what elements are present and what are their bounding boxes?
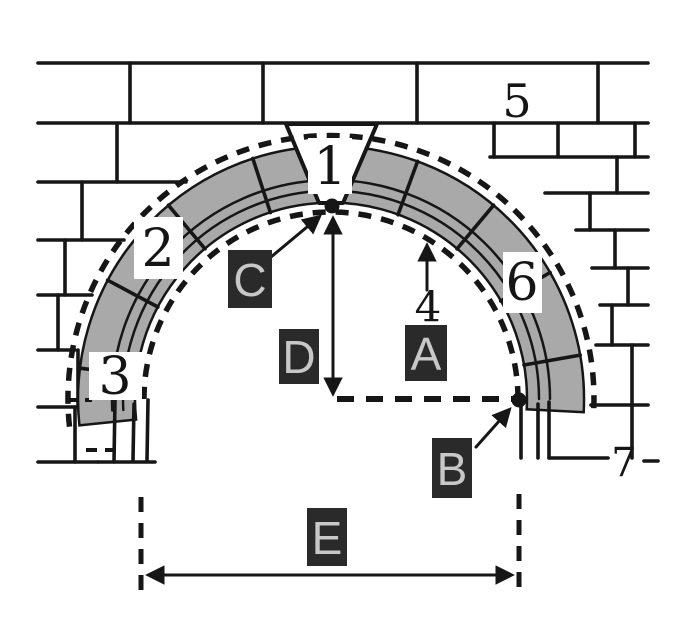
answer-box-b: B: [432, 438, 472, 498]
label-3-text: 3: [98, 347, 131, 407]
answer-c-text: C: [233, 254, 266, 306]
springing-dot: [512, 393, 527, 408]
number-label-1-keystone: 1: [308, 137, 352, 197]
number-label-7-abutment: 7: [611, 440, 636, 486]
arch-diagram: 1 2 3 4 5 6 7 C D A B E: [0, 0, 678, 630]
answer-b-text: B: [437, 443, 468, 495]
answer-box-c: C: [228, 250, 272, 308]
number-label-4-intrados: 4: [415, 283, 442, 332]
label-1-text: 1: [313, 137, 346, 197]
label-c-arrow: [271, 217, 319, 257]
number-label-3-springer: 3: [89, 347, 142, 407]
number-label-2-voussoir: 2: [134, 217, 183, 279]
answer-box-d: D: [279, 329, 319, 384]
number-label-6-haunch: 6: [503, 252, 542, 313]
crown-dot: [325, 199, 340, 214]
answer-box-a: A: [405, 325, 447, 381]
label-6-text: 6: [505, 253, 538, 313]
number-label-5-wall: 5: [502, 74, 531, 128]
answer-box-e: E: [307, 508, 347, 566]
label-2-text: 2: [141, 219, 174, 279]
answer-e-text: E: [312, 512, 343, 564]
answer-a-text: A: [411, 328, 442, 380]
label-b-arrow: [476, 410, 509, 447]
answer-d-text: D: [282, 331, 315, 383]
